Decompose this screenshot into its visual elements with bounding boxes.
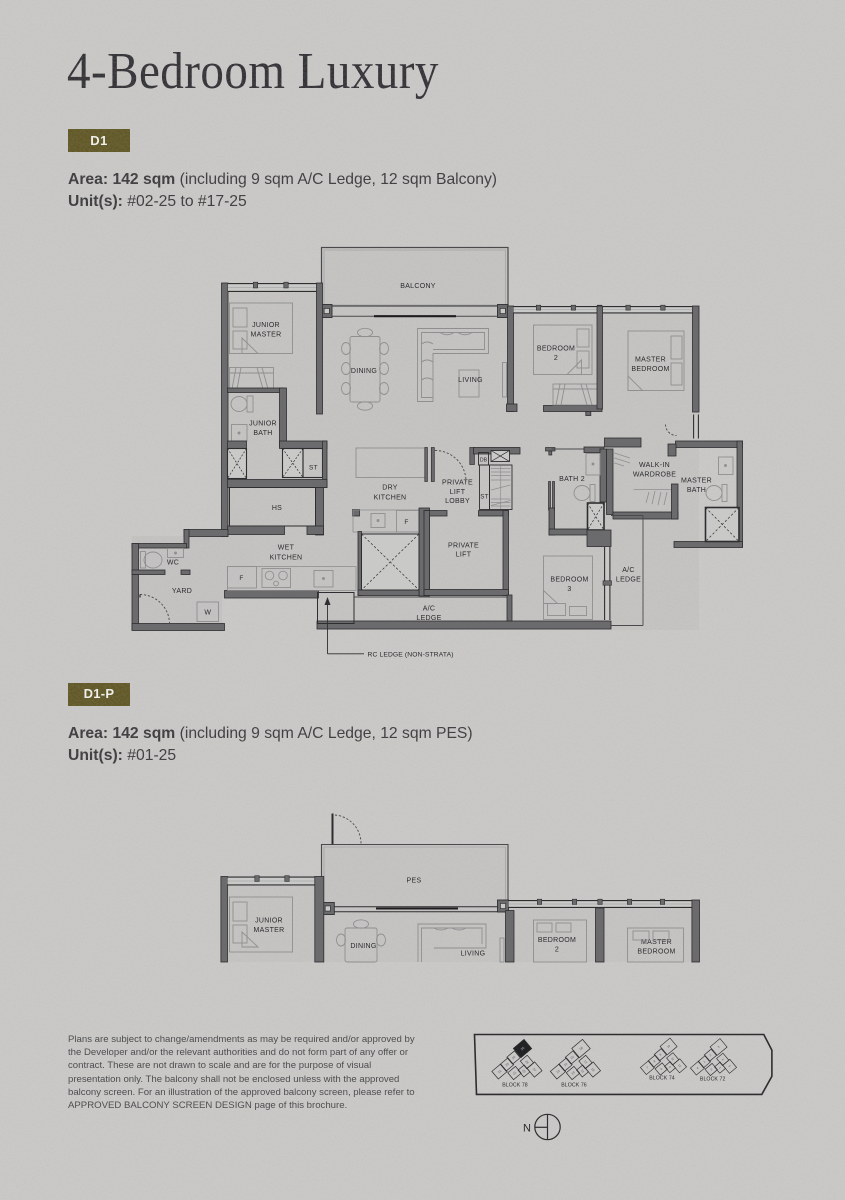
svg-text:BLOCK 78: BLOCK 78 bbox=[502, 1083, 528, 1089]
svg-text:HS: HS bbox=[272, 505, 282, 512]
svg-text:YARD: YARD bbox=[172, 588, 192, 595]
svg-text:DINING: DINING bbox=[351, 368, 377, 375]
svg-text:WC: WC bbox=[167, 560, 179, 567]
svg-text:DB: DB bbox=[480, 458, 488, 464]
svg-text:W: W bbox=[204, 610, 211, 617]
svg-text:PES: PES bbox=[407, 878, 422, 885]
svg-text:BATH 2: BATH 2 bbox=[559, 476, 585, 483]
svg-text:RC LEDGE (NON-STRATA): RC LEDGE (NON-STRATA) bbox=[368, 651, 454, 658]
svg-text:F: F bbox=[404, 519, 408, 526]
svg-text:F: F bbox=[239, 575, 243, 582]
svg-text:LIVING: LIVING bbox=[458, 377, 483, 384]
svg-text:BALCONY: BALCONY bbox=[400, 283, 436, 290]
svg-text:BLOCK 72: BLOCK 72 bbox=[700, 1077, 726, 1083]
svg-text:ST: ST bbox=[480, 494, 489, 501]
svg-text:BLOCK 76: BLOCK 76 bbox=[561, 1082, 587, 1088]
svg-text:BLOCK 74: BLOCK 74 bbox=[649, 1075, 675, 1081]
svg-text:N: N bbox=[523, 1123, 531, 1135]
svg-text:DINING: DINING bbox=[350, 943, 376, 950]
svg-text:ST: ST bbox=[309, 465, 318, 472]
svg-text:LIVING: LIVING bbox=[461, 951, 486, 958]
